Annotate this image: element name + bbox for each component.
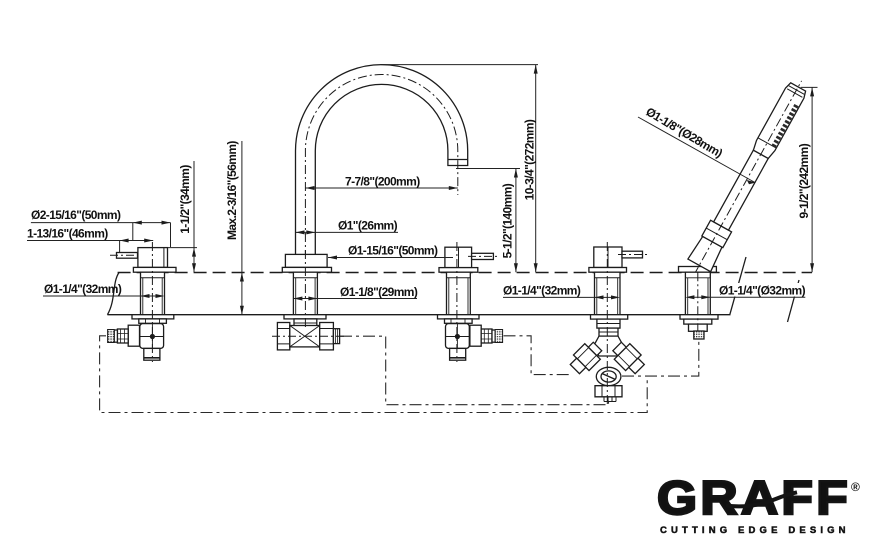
svg-text:9-1/2"(242mm): 9-1/2"(242mm) [797,143,811,218]
svg-text:Ø1-1/4"(Ø32mm): Ø1-1/4"(Ø32mm) [719,284,806,298]
svg-text:Ø1-15/16"(50mm): Ø1-15/16"(50mm) [348,244,438,258]
svg-text:CUTTING EDGE DESIGN: CUTTING EDGE DESIGN [660,525,850,536]
svg-text:1-1/2"(34mm): 1-1/2"(34mm) [178,165,192,234]
svg-text:1-13/16"(46mm): 1-13/16"(46mm) [27,227,108,241]
svg-text:7-7/8"(200mm): 7-7/8"(200mm) [345,175,420,189]
svg-text:Ø1-1/4"(32mm): Ø1-1/4"(32mm) [44,282,122,296]
svg-text:Ø1"(26mm): Ø1"(26mm) [338,219,398,233]
svg-text:GRAFF: GRAFF [657,471,851,524]
svg-text:®: ® [851,480,860,494]
svg-text:10-3/4"(272mm): 10-3/4"(272mm) [522,119,536,200]
svg-text:Max.2-3/16"(56mm): Max.2-3/16"(56mm) [225,141,239,240]
svg-text:Ø2-15/16"(50mm): Ø2-15/16"(50mm) [31,208,121,222]
svg-text:Ø1-1/4"(32mm): Ø1-1/4"(32mm) [503,284,581,298]
svg-text:Ø1-1/8"(29mm): Ø1-1/8"(29mm) [340,285,418,299]
svg-text:5-1/2"(140mm): 5-1/2"(140mm) [500,183,514,258]
